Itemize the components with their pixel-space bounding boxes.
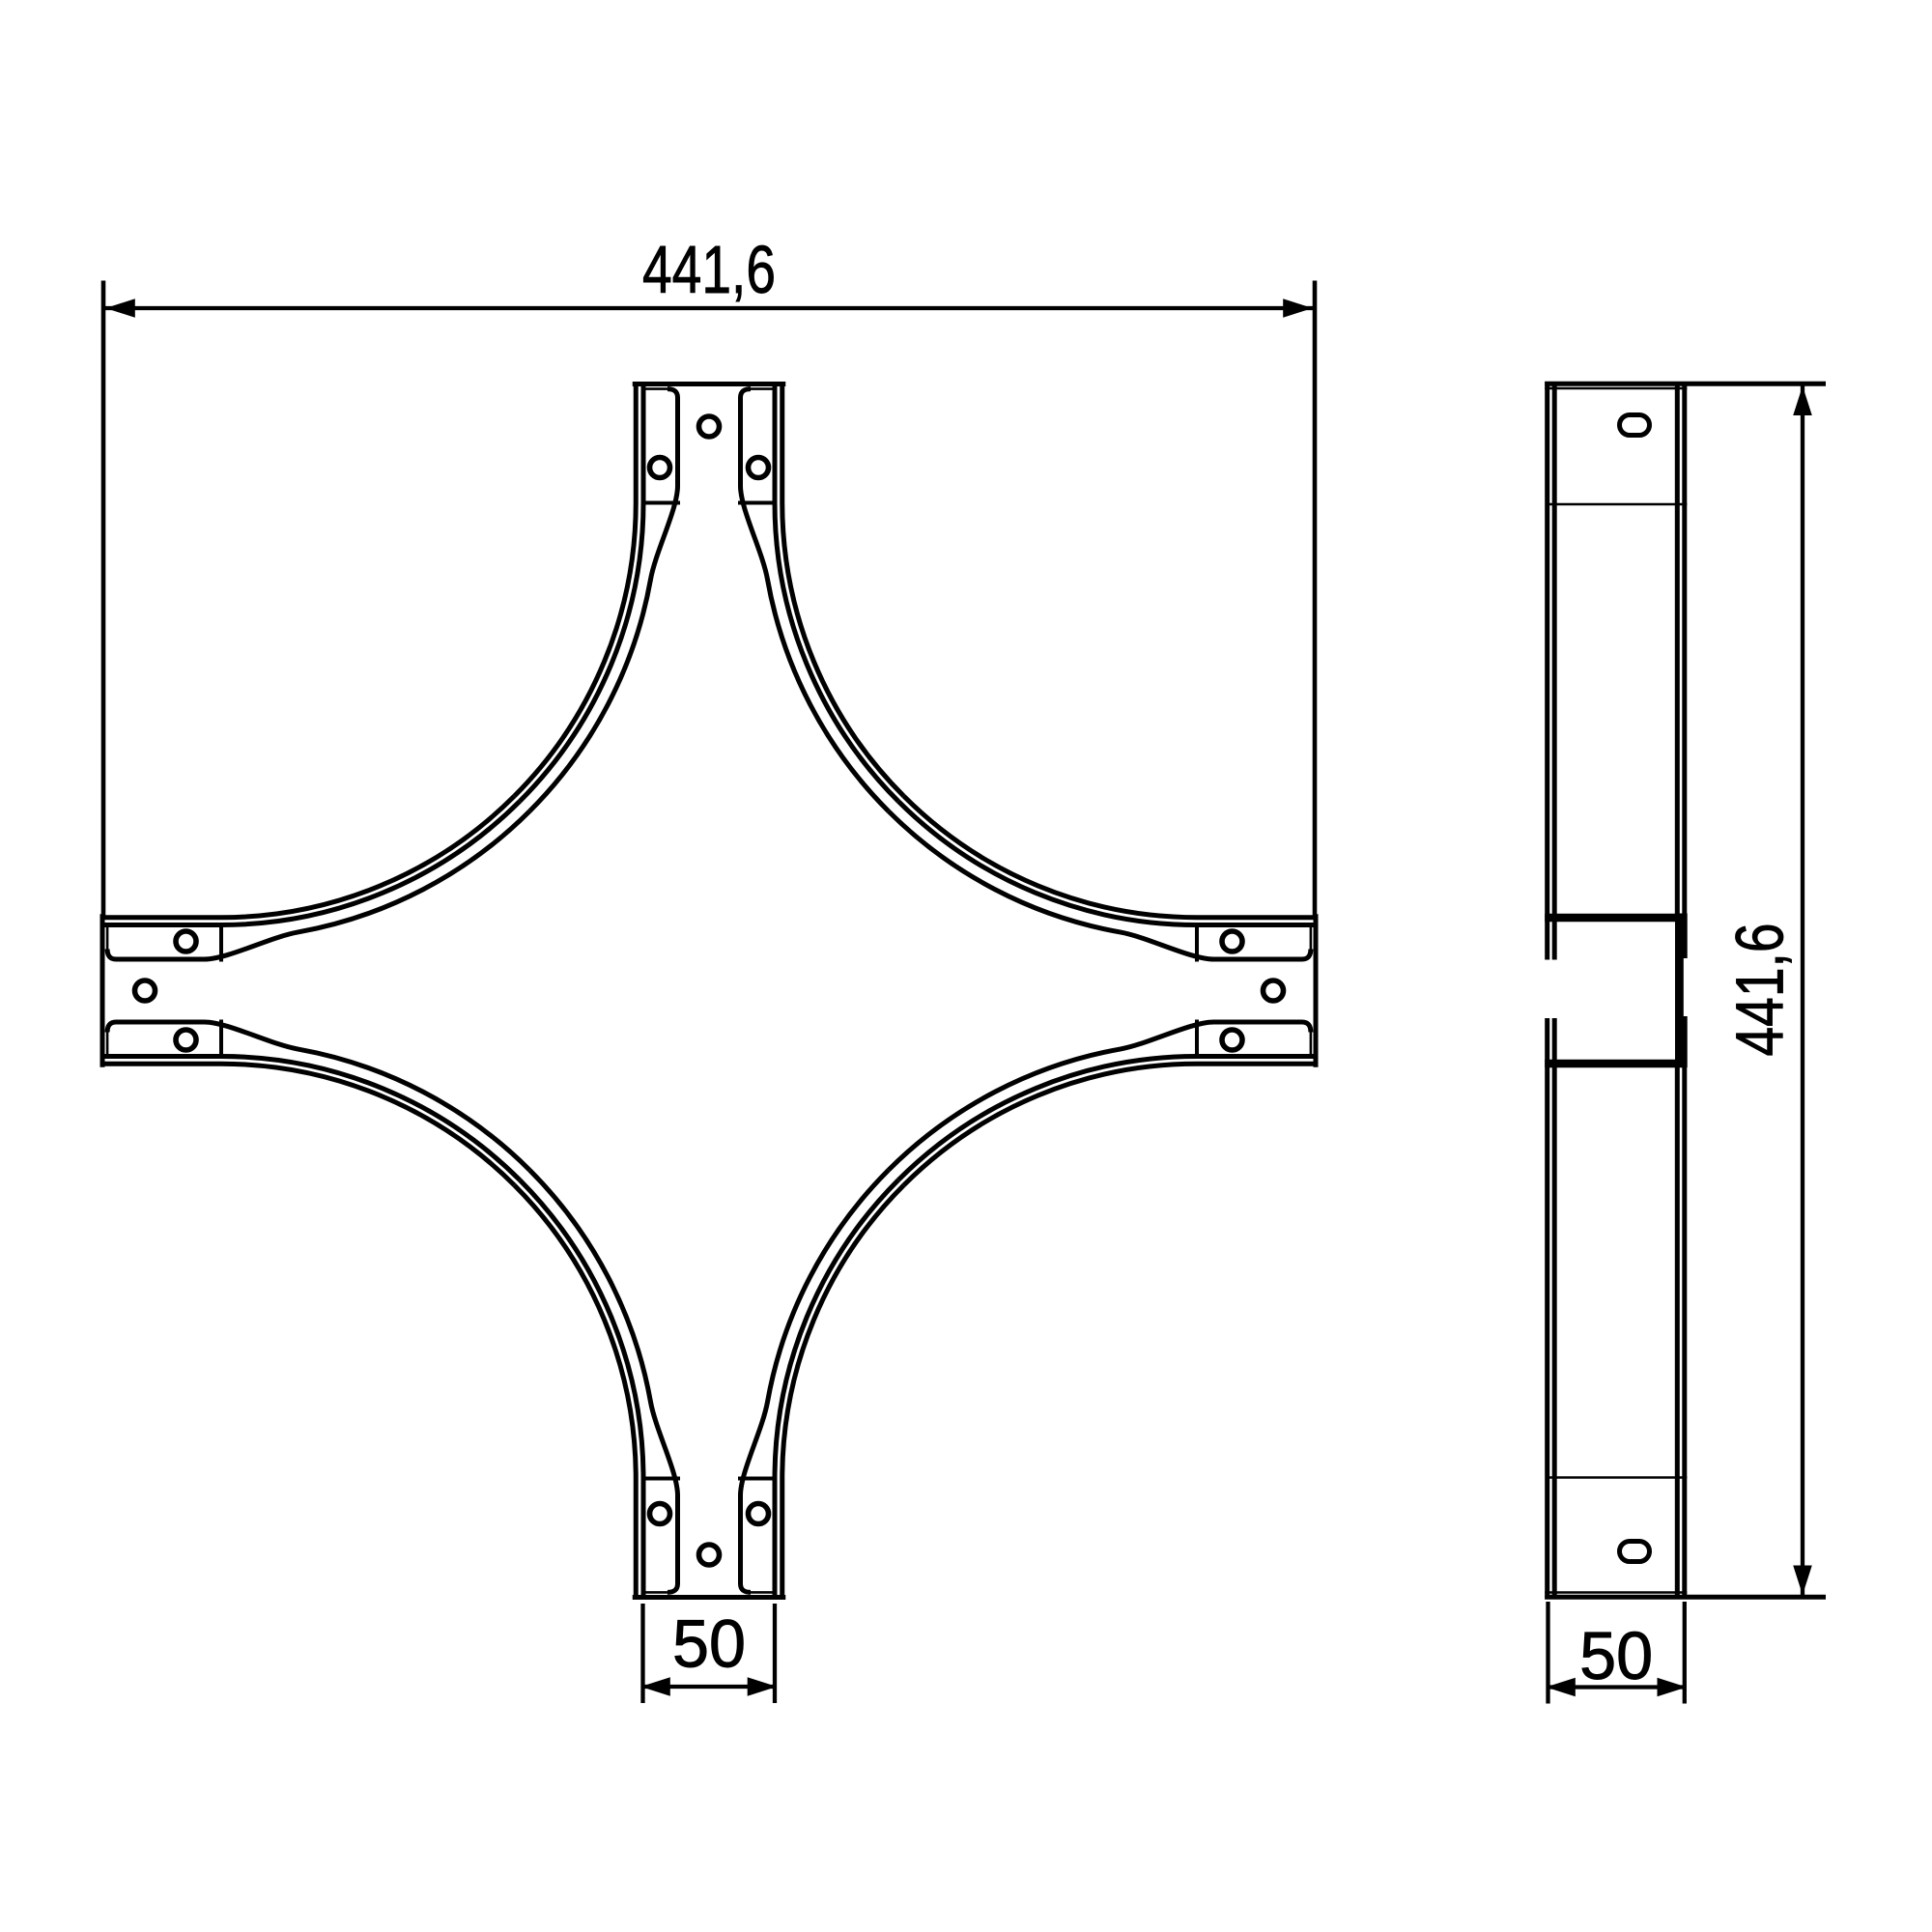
svg-text:50: 50 [1579, 1618, 1653, 1693]
svg-text:50: 50 [672, 1606, 746, 1682]
svg-text:441,6: 441,6 [642, 232, 776, 307]
svg-text:441,6: 441,6 [1722, 923, 1798, 1057]
